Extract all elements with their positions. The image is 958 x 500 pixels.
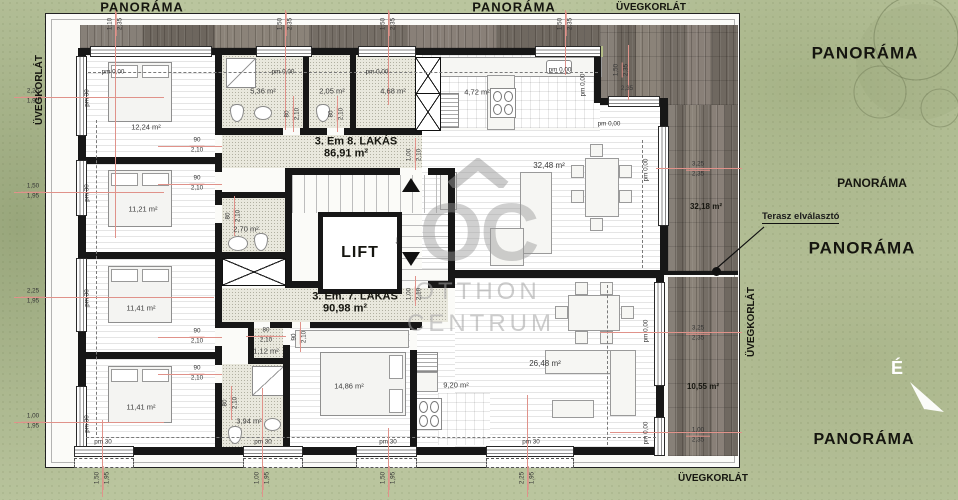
shaft bbox=[415, 57, 441, 95]
panorama-label: PANORÁMA bbox=[100, 1, 184, 14]
coffee-table bbox=[552, 400, 594, 418]
room-area: 9,20 m² bbox=[443, 381, 468, 389]
stove-burners bbox=[416, 398, 442, 430]
room-area: 10,55 m² bbox=[687, 383, 719, 391]
dimension: 1,001,95 bbox=[21, 414, 45, 431]
chair bbox=[621, 306, 634, 319]
room-area: 32,48 m² bbox=[533, 162, 565, 170]
door-dimension: 902,10 bbox=[190, 176, 205, 193]
wall bbox=[222, 128, 283, 135]
level-dashed-line bbox=[86, 437, 656, 438]
chair bbox=[590, 144, 603, 157]
window bbox=[608, 96, 660, 107]
window bbox=[256, 46, 312, 57]
living8-floor-step bbox=[600, 105, 660, 132]
wardrobe-shaft bbox=[222, 258, 286, 286]
window bbox=[486, 446, 574, 457]
dining-table bbox=[585, 158, 619, 217]
room-area: 14,86 m² bbox=[334, 382, 364, 390]
wall bbox=[310, 322, 422, 328]
plinth-mark: pm 30 bbox=[379, 439, 397, 446]
dimension: 3,252,35 bbox=[686, 326, 710, 343]
room-area: 11,41 m² bbox=[126, 403, 155, 411]
room-area: 3,94 m² bbox=[236, 417, 261, 425]
panorama-label: PANORÁMA bbox=[809, 240, 916, 257]
panorama-label: PANORÁMA bbox=[813, 432, 914, 448]
room-area: 1,12 m² bbox=[253, 347, 278, 355]
appliance-cabinet bbox=[416, 352, 438, 372]
watermark-line1: OTTHON bbox=[415, 278, 540, 306]
washbasin bbox=[264, 418, 281, 431]
door-dimension: 802,10 bbox=[223, 396, 240, 411]
door-dimension: 902,10 bbox=[190, 329, 205, 346]
tree-sketch bbox=[818, 0, 958, 170]
window bbox=[535, 46, 601, 57]
bed bbox=[108, 266, 172, 323]
panorama-label: PANORÁMA bbox=[837, 177, 907, 189]
door-dimension: 802,10 bbox=[329, 107, 346, 122]
wall bbox=[285, 168, 400, 175]
level-mark: pm 0,00 bbox=[549, 67, 572, 74]
level-mark: pm 0,00 bbox=[643, 422, 650, 445]
dimension: 1,502,35 bbox=[381, 12, 398, 36]
wall bbox=[300, 128, 327, 135]
dimension: 1,002,35 bbox=[686, 428, 710, 445]
room-area: 5,36 m² bbox=[250, 87, 275, 95]
wall bbox=[222, 192, 290, 198]
glass-railing-label: ÜVEGKORLÁT bbox=[678, 474, 748, 484]
wall bbox=[303, 55, 309, 128]
dimension: 1,502,35 bbox=[614, 63, 631, 78]
plinth-mark: pm 30 bbox=[94, 439, 112, 446]
chair bbox=[555, 306, 568, 319]
stair-up-arrow bbox=[402, 178, 420, 192]
wardrobe bbox=[295, 330, 409, 348]
shower-tray bbox=[252, 366, 284, 396]
room-area: 4,72 m² bbox=[464, 88, 489, 96]
room-area: 4,68 m² bbox=[380, 87, 405, 95]
apartment8-name: 3. Em 8. LAKÁS bbox=[315, 137, 398, 148]
wall bbox=[410, 350, 417, 447]
door-dimension: 802,10 bbox=[226, 209, 243, 224]
panorama-label: PANORÁMA bbox=[812, 45, 919, 62]
wall bbox=[78, 352, 222, 359]
dimension: 2,251,95 bbox=[21, 289, 45, 306]
plinth-mark: pm 30 bbox=[84, 415, 91, 433]
washbasin bbox=[254, 106, 272, 120]
dining-table bbox=[568, 295, 620, 331]
glass-railing-label: ÜVEGKORLÁT bbox=[35, 55, 45, 125]
room-area: 26,48 m² bbox=[529, 360, 561, 368]
plinth-mark: pm 30 bbox=[522, 439, 540, 446]
level-dashed-line bbox=[607, 285, 608, 445]
level-mark: pm 0,00 bbox=[643, 159, 650, 182]
wall bbox=[350, 55, 356, 128]
dimension: 1,502,35 bbox=[558, 12, 575, 36]
wall bbox=[283, 345, 290, 447]
room-area: 11,21 m² bbox=[128, 205, 157, 213]
level-dashed-line bbox=[96, 120, 97, 435]
chair bbox=[571, 165, 584, 178]
plinth-mark: pm 30 bbox=[84, 289, 91, 307]
chair bbox=[575, 282, 588, 295]
kitchen-counter bbox=[440, 57, 602, 77]
window bbox=[654, 282, 665, 386]
chair bbox=[575, 331, 588, 344]
level-mark: pm 0,00 bbox=[272, 69, 295, 76]
wall bbox=[78, 157, 222, 164]
lift-door-gap bbox=[387, 228, 394, 258]
door-dimension: 802,10 bbox=[259, 328, 274, 345]
terrace-top-band bbox=[80, 25, 600, 48]
dimension: 1,102,35 bbox=[108, 12, 125, 36]
sofa bbox=[610, 350, 636, 416]
level-mark: pm 0,00 bbox=[102, 69, 125, 76]
door-dimension: 902,10 bbox=[190, 138, 205, 155]
room-area: 2,70 m² bbox=[233, 225, 258, 233]
door-dimension: 802,10 bbox=[285, 107, 302, 122]
window bbox=[356, 446, 417, 457]
wall bbox=[78, 252, 222, 259]
chair bbox=[619, 165, 632, 178]
dimension: 1,001,95 bbox=[255, 466, 272, 490]
door-dimension: 1,002,10 bbox=[407, 287, 424, 302]
door-dimension: 902,10 bbox=[190, 366, 205, 383]
lift-arrow: ↓ bbox=[394, 236, 400, 247]
appliance-cabinet bbox=[440, 93, 459, 128]
shaft bbox=[415, 93, 441, 131]
level-mark: pm 0,00 bbox=[366, 69, 389, 76]
bed bbox=[108, 170, 172, 227]
apartment8-area: 86,91 m² bbox=[324, 149, 368, 160]
plinth-mark: pm 30 bbox=[84, 89, 91, 107]
room-area: 11,41 m² bbox=[126, 304, 155, 312]
wall bbox=[285, 168, 292, 288]
watermark-roof-icon bbox=[447, 158, 509, 188]
dimension: 1,502,35 bbox=[278, 12, 295, 36]
terrace-divider-label: Terasz elválasztó bbox=[762, 211, 839, 224]
window bbox=[358, 46, 416, 57]
dimension-line bbox=[610, 432, 742, 433]
door-dimension: 1,002,10 bbox=[407, 148, 424, 163]
chair bbox=[619, 190, 632, 203]
window bbox=[74, 446, 134, 457]
wall bbox=[215, 190, 222, 205]
room-area: 12,24 m² bbox=[131, 123, 161, 131]
wall bbox=[215, 48, 222, 135]
wall bbox=[215, 223, 222, 328]
chair bbox=[571, 190, 584, 203]
plinth-mark: pm 30 bbox=[84, 184, 91, 202]
glass-railing-label: ÜVEGKORLÁT bbox=[616, 3, 686, 13]
terrace-divider-leader bbox=[712, 224, 768, 274]
stove-burners bbox=[490, 88, 516, 118]
window bbox=[658, 126, 669, 226]
dimension-line bbox=[115, 10, 116, 238]
shower-tray bbox=[226, 58, 256, 88]
dimension-line bbox=[600, 332, 742, 333]
window-sill bbox=[243, 458, 303, 468]
level-dashed-line bbox=[88, 72, 598, 73]
window bbox=[90, 46, 212, 57]
stair-down-arrow bbox=[402, 252, 420, 266]
watermark-line2: CENTRUM bbox=[407, 310, 555, 338]
door-dimension: 902,10 bbox=[292, 330, 309, 345]
wall bbox=[344, 128, 422, 135]
level-mark: pm 0,00 bbox=[580, 74, 587, 97]
watermark-monogram: OC bbox=[420, 186, 537, 280]
dimension: 1,501,95 bbox=[381, 466, 398, 490]
chair bbox=[590, 218, 603, 231]
dimension: 2,251,95 bbox=[520, 466, 537, 490]
level-mark: pm 0,00 bbox=[643, 320, 650, 343]
wall bbox=[248, 322, 254, 362]
room-area: 2,05 m² bbox=[319, 87, 344, 95]
dimension: 1,501,95 bbox=[21, 184, 45, 201]
dimension: 3,252,35 bbox=[686, 162, 710, 179]
level-mark: pm 0,00 bbox=[598, 121, 621, 128]
dimension: 1,501,95 bbox=[95, 466, 112, 490]
north-arrow-icon bbox=[900, 382, 954, 434]
north-label: É bbox=[891, 359, 903, 377]
apartment7-name: 3. Em. 7. LAKÁS bbox=[312, 292, 398, 303]
washbasin bbox=[228, 236, 248, 251]
lift-label: LIFT bbox=[341, 244, 379, 262]
room-area: 32,18 m² bbox=[690, 203, 722, 211]
window bbox=[243, 446, 303, 457]
plinth-mark: pm 30 bbox=[254, 439, 272, 446]
glass-railing-label: ÜVEGKORLÁT bbox=[747, 287, 757, 357]
panorama-label: PANORÁMA bbox=[472, 1, 556, 14]
apartment7-area: 90,98 m² bbox=[323, 304, 367, 315]
oven bbox=[416, 372, 438, 392]
dimension: 2,35 bbox=[621, 86, 633, 92]
floor-plan: LIFT ↓ bbox=[0, 0, 958, 500]
